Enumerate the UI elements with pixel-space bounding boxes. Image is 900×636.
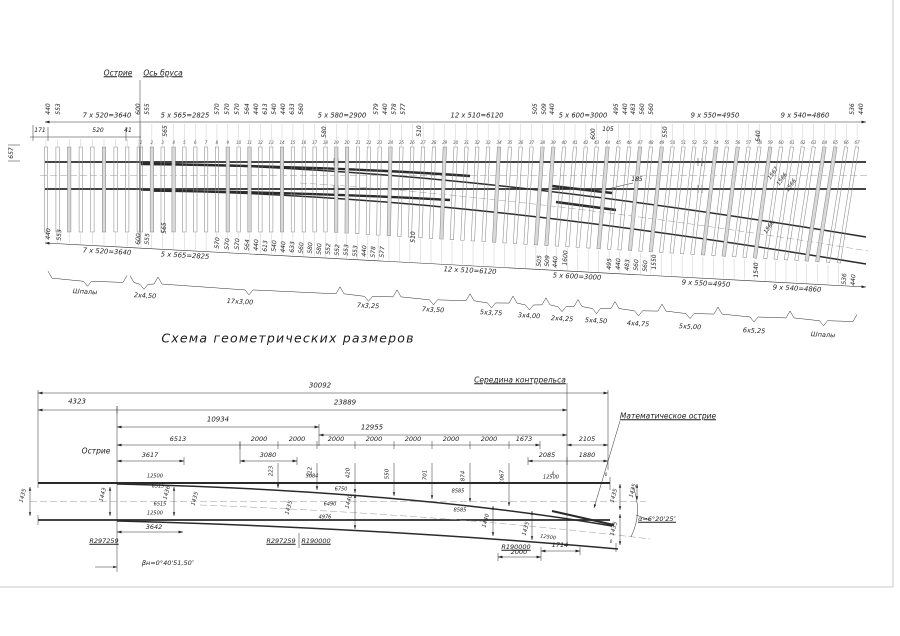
dim-label: 555 <box>145 103 151 114</box>
dim-label: 440 <box>254 239 261 251</box>
sleeper-number: 13 <box>269 140 275 145</box>
dim-label: 2x4,25 <box>551 315 574 323</box>
dim-label: 657 <box>9 147 15 158</box>
dim-label: 5x5,00 <box>679 323 702 331</box>
dim-label: Шпалы <box>811 331 836 339</box>
brace <box>340 287 397 302</box>
dim-label: 3642 <box>146 524 163 531</box>
dim-label: 440 <box>362 245 369 257</box>
dim-label: 552 <box>326 243 333 255</box>
dim-label: 495 <box>607 258 614 270</box>
dim-label: 2000 <box>251 436 268 443</box>
dim-label: 7x3,25 <box>357 302 380 310</box>
dim-label: 2105 <box>579 436 596 443</box>
dim-label: 555 <box>145 233 152 245</box>
dim-label: 540 <box>272 103 278 114</box>
dim-label: 536 <box>842 273 849 285</box>
dim-label: 701 <box>423 470 429 481</box>
dim-label: 2000 <box>443 436 460 443</box>
dim-label: 3617 <box>142 452 159 459</box>
sleeper-number: 32 <box>475 140 481 145</box>
brace <box>578 300 615 314</box>
sleeper-number: 8 <box>216 140 219 145</box>
dim-label: 600 <box>136 103 142 114</box>
dim-label: 1714 <box>552 542 569 549</box>
dim-label: 440 <box>281 103 287 114</box>
dim-label: 2000 <box>289 436 306 443</box>
dim-label: Математическое острие <box>620 412 716 420</box>
dim-label: 570 <box>235 238 242 250</box>
dim-label: R297259 <box>266 538 295 545</box>
dim-label: 553 <box>56 103 62 114</box>
sleeper-number: 15 <box>290 140 296 145</box>
dim-label: 2085 <box>539 452 556 459</box>
sleeper-number: 10 <box>236 140 242 145</box>
sleeper-number: 53 <box>703 140 709 145</box>
dim-label: 5 x 580=2900 <box>318 113 367 120</box>
sleeper-number: 17 <box>312 140 318 145</box>
sleeper-number: 57 <box>746 140 752 145</box>
sleeper-number: 29 <box>442 140 448 145</box>
dim-label: 564 <box>245 103 251 114</box>
dim-label: 10934 <box>207 417 229 424</box>
dim-label: 633 <box>290 241 297 253</box>
sleeper-number: 1 <box>140 140 143 145</box>
dim-label: 1673 <box>516 436 533 443</box>
dim-label: 565 <box>162 222 168 233</box>
dim-label: 12500 <box>543 476 559 481</box>
dim-label: 9 x 550=4950 <box>691 113 740 120</box>
dim-label: 633 <box>290 103 296 114</box>
dim-label: 553 <box>344 244 351 256</box>
dim-label: 495 <box>614 103 620 114</box>
sleeper-number: 63 <box>811 140 817 145</box>
sleeper-number: 62 <box>800 140 806 145</box>
dim-label: 7x3,50 <box>422 306 445 314</box>
sleeper-number: 35 <box>507 140 513 145</box>
dim-label: 552 <box>335 244 342 256</box>
dim-label: 577 <box>401 103 407 114</box>
dim-label: 578 <box>371 246 378 258</box>
sleeper-number: 37 <box>529 140 535 145</box>
dim-label: 5x3,75 <box>480 309 503 317</box>
dim-label: 4x4,75 <box>627 320 650 328</box>
dim-label: 12500 <box>147 475 163 480</box>
dim-label: 2000 <box>405 436 422 443</box>
sleeper-number: 26 <box>410 140 416 145</box>
dim-label: 550 <box>385 469 391 480</box>
sleeper-number: 64 <box>822 140 828 145</box>
brace <box>513 296 546 310</box>
sleeper-number: 5 <box>183 140 186 145</box>
top-diagram-generated: 1234567891011121314151617181920212223242… <box>44 124 860 285</box>
sleeper-number: 40 <box>562 140 568 145</box>
dim-label: 1600 <box>563 250 570 266</box>
dim-label: 565 <box>163 125 169 136</box>
sleeper-number: 48 <box>648 140 654 145</box>
dim-label: βн=0°40'51,50″ <box>142 560 194 567</box>
dim-label: 30092 <box>309 383 331 390</box>
dim-label: 560 <box>634 259 641 271</box>
dim-label: 1067 <box>500 470 506 484</box>
dim-label: 5084 <box>306 475 319 480</box>
dim-label: 105 <box>602 127 613 133</box>
dim-label: 560 <box>299 242 306 254</box>
dim-label: 12955 <box>361 425 383 432</box>
dim-label: 0 <box>552 472 555 476</box>
dim-label: 505 <box>533 103 539 114</box>
dim-label: 553 <box>57 229 64 241</box>
sleeper-number: 6 <box>194 140 197 145</box>
dim-label: 510 <box>411 231 417 242</box>
dim-label: 2000 <box>481 436 498 443</box>
dim-label: 6513 <box>170 436 187 443</box>
sleeper-number: 34 <box>497 140 503 145</box>
dim-label: 6x5,25 <box>743 327 766 335</box>
dim-label: 600 <box>136 233 143 245</box>
sleeper-number: 44 <box>605 140 611 145</box>
dim-label: 600 <box>591 128 597 139</box>
sleeper-number: 55 <box>724 140 730 145</box>
dim-label: 6515 <box>154 503 167 508</box>
dim-label: 2000 <box>366 436 383 443</box>
dim-label: 171 <box>34 128 45 134</box>
brace <box>470 294 513 308</box>
sleeper-number: 38 <box>540 140 546 145</box>
dim-label: 6750 <box>335 488 348 493</box>
brace <box>718 307 790 322</box>
sleeper-number: 60 <box>779 140 785 145</box>
dim-label: 509 <box>545 255 552 267</box>
dim-label: 570 <box>225 238 232 250</box>
sleeper-number: 9 <box>227 140 230 145</box>
sleeper-number: 56 <box>735 140 741 145</box>
brace <box>158 277 340 295</box>
sleeper-number: 16 <box>301 140 307 145</box>
dim-label: 540 <box>756 130 762 141</box>
dim-label: 440 <box>46 103 52 114</box>
brace <box>48 271 127 286</box>
dim-label: 2000 <box>511 549 528 556</box>
dim-label: 440 <box>46 228 53 240</box>
sleeper-number: 42 <box>583 140 589 145</box>
sleeper-number: 19 <box>334 140 340 145</box>
dim-label: 12 x 510=6120 <box>451 113 504 120</box>
sleeper-number: 27 <box>421 140 427 145</box>
dim-label: 440 <box>623 103 629 114</box>
dim-label: 580 <box>308 242 315 254</box>
dim-label: 440 <box>281 241 288 253</box>
dim-label: 440 <box>254 103 260 114</box>
sleeper-number: 47 <box>638 140 644 145</box>
dim-label: 560 <box>643 260 650 272</box>
sleeper-number: 46 <box>627 140 633 145</box>
diagram-title: Схема геометрических размеров <box>161 331 414 346</box>
dim-label: 1540 <box>754 262 760 277</box>
sleeper-number: 21 <box>355 140 360 145</box>
sleeper-number: 41 <box>572 140 577 145</box>
sleeper-number: 24 <box>388 140 394 145</box>
dim-label: 223 <box>269 466 275 477</box>
dim-label: 5 x 565=2825 <box>161 113 210 120</box>
sleeper-number: 61 <box>789 140 794 145</box>
sleeper-number: 11 <box>247 140 252 145</box>
dim-label: 579 <box>374 103 380 114</box>
dim-label: 23889 <box>334 400 356 407</box>
dim-label: 570 <box>235 103 241 114</box>
dim-label: α=6°20'25″ <box>638 516 676 523</box>
dim-label: 17x3,00 <box>227 298 254 306</box>
dim-label: 9 x 540=4860 <box>781 113 830 120</box>
sleeper-number: 3 <box>161 140 164 145</box>
sleeper-number: 30 <box>453 140 459 145</box>
dim-label: 6515 <box>152 485 165 490</box>
dim-label: 550 <box>663 126 669 137</box>
dim-label: 536 <box>850 103 856 114</box>
sleeper-number: 59 <box>768 140 774 145</box>
dim-label: 3080 <box>260 452 277 459</box>
sleeper-number: 51 <box>681 140 686 145</box>
dim-label: 613 <box>263 240 270 252</box>
dim-label: Середина контррельса <box>474 376 566 384</box>
sleeper-number: 66 <box>844 140 850 145</box>
sleeper-number: 18 <box>323 140 329 145</box>
dim-label: 520 <box>92 128 103 134</box>
dim-label: 560 <box>299 103 305 114</box>
dim-label: 509 <box>542 103 548 114</box>
dim-label: 0 <box>610 540 613 544</box>
dim-label: 570 <box>215 103 221 114</box>
dim-label: 2000 <box>328 436 345 443</box>
sleeper-number: 20 <box>345 140 351 145</box>
brace <box>130 276 158 290</box>
dim-label: 3x4,00 <box>518 312 541 320</box>
dim-label: R190000 <box>301 538 330 545</box>
dim-label: 564 <box>245 239 252 251</box>
dim-label: Острие <box>104 69 133 77</box>
sleeper-number: 25 <box>399 140 405 145</box>
dim-label: 0 <box>605 473 608 477</box>
sleeper-number: 23 <box>377 140 383 145</box>
sleeper-number: 2 <box>151 140 154 145</box>
dim-label: 570 <box>225 103 231 114</box>
dim-label: 185 <box>631 177 642 183</box>
dim-label: 510 <box>417 125 423 136</box>
dim-label: 874 <box>461 471 467 482</box>
dim-label: 8585 <box>454 509 467 514</box>
dim-label: 580 <box>322 126 328 137</box>
sleeper-number: 65 <box>833 140 839 145</box>
dim-label: 440 <box>383 103 389 114</box>
dim-label: 5 x 600=3000 <box>559 113 608 120</box>
brace <box>397 290 470 305</box>
sleeper-number: 39 <box>551 140 557 145</box>
dim-label: 1880 <box>579 452 596 459</box>
sleeper-number: 14 <box>279 140 285 145</box>
drawing-sheet: 1234567891011121314151617181920212223242… <box>0 0 900 636</box>
dim-label: 483 <box>625 259 632 271</box>
dim-label: 4323 <box>68 399 86 406</box>
sleeper-number: 54 <box>713 140 719 145</box>
sleeper-number: 67 <box>855 140 861 145</box>
sleeper-number: 22 <box>366 140 372 145</box>
dim-label: 560 <box>640 103 646 114</box>
dim-label: 6490 <box>324 503 337 508</box>
dim-label: 613 <box>263 103 269 114</box>
dim-label: 7 x 520=3640 <box>83 113 132 120</box>
sleeper-number: 52 <box>692 140 698 145</box>
dim-label: 1550 <box>652 254 658 269</box>
drawing-canvas: 1234567891011121314151617181920212223242… <box>0 0 900 636</box>
dim-label: 4976 <box>319 516 332 521</box>
sleeper-number: 43 <box>594 140 600 145</box>
sleeper-number: 49 <box>659 140 665 145</box>
sleeper-number: 28 <box>431 140 437 145</box>
sleeper-number: 12 <box>258 140 264 145</box>
dim-label: 440 <box>851 274 858 286</box>
dim-label: 553 <box>353 245 360 257</box>
brace <box>790 311 857 326</box>
dim-label: 440 <box>616 258 623 270</box>
dim-label: 8585 <box>452 490 465 495</box>
dim-label: 505 <box>537 255 544 267</box>
dim-label: 577 <box>380 246 387 258</box>
sleeper-number: 4 <box>172 140 175 145</box>
dim-label: 420 <box>346 468 352 479</box>
dim-label: 580 <box>317 243 324 255</box>
dim-label: 12500 <box>147 512 163 517</box>
sleeper-group-braces <box>48 271 857 326</box>
brace <box>615 302 662 316</box>
brace <box>546 298 578 312</box>
dim-label: 5x4,50 <box>585 317 608 325</box>
dim-label: 440 <box>859 103 865 114</box>
dim-label: 570 <box>215 237 222 249</box>
sleeper-number: 31 <box>464 140 469 145</box>
dim-label: Острие <box>82 447 111 455</box>
sleeper-number: 7 <box>205 140 208 145</box>
brace <box>662 304 718 319</box>
dim-label: 578 <box>392 103 398 114</box>
dim-label: 540 <box>272 240 279 252</box>
dim-label: 41 <box>124 128 132 134</box>
dim-label: 440 <box>550 103 556 114</box>
sleeper-number: 36 <box>518 140 524 145</box>
sleeper-number: 50 <box>670 140 676 145</box>
dim-label: Шпалы <box>73 288 98 296</box>
dim-label: 483 <box>631 103 637 114</box>
dim-label: Ось бруса <box>143 69 182 77</box>
sleeper-number: 45 <box>616 140 622 145</box>
dim-label: 2x4,50 <box>134 292 157 300</box>
dim-label: 560 <box>649 103 655 114</box>
dim-label: R297259 <box>89 538 118 545</box>
dim-label: 440 <box>553 256 560 268</box>
sleeper-number: 33 <box>486 140 492 145</box>
